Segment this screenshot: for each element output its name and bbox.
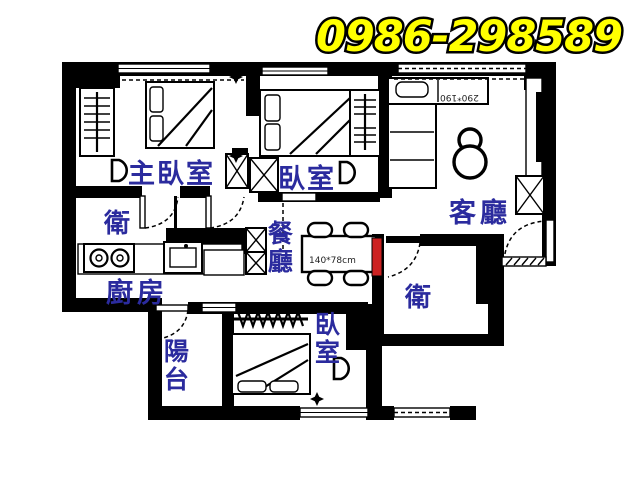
side-table-large xyxy=(454,146,486,178)
room-label-living-room: 客廳 xyxy=(449,191,511,230)
dining-chair-4 xyxy=(344,271,368,285)
bed-bedroom3-pillow-2 xyxy=(270,381,298,392)
door-frame-red xyxy=(372,238,382,276)
tv xyxy=(536,92,544,162)
dining-chair-3 xyxy=(308,271,332,285)
room-label-bedroom3: 臥室 xyxy=(313,311,342,367)
wall-divider-master-bed2 xyxy=(246,62,260,116)
sofa-pillow xyxy=(396,82,428,97)
bed-master-pillow-2 xyxy=(150,116,163,141)
room-label-kitchen: 廚房 xyxy=(106,271,168,310)
door-handle-bedroom2 xyxy=(340,162,355,183)
room-label-bath-top: 衛 xyxy=(104,203,130,240)
sofa-seat xyxy=(388,104,436,188)
door-handle-master xyxy=(112,160,127,181)
phone-number: 0986-298589 xyxy=(316,12,622,62)
dining-chair-2 xyxy=(344,223,368,237)
bed-bedroom2-pillow-1 xyxy=(265,95,280,121)
door-arc-bath-right xyxy=(388,243,420,277)
fridge xyxy=(204,250,244,275)
bed-bedroom2-pillow-2 xyxy=(265,124,280,150)
door-leaf-bath-top xyxy=(140,196,145,228)
bed-bedroom3-pillow-1 xyxy=(238,381,266,392)
bed-master-pillow-1 xyxy=(150,87,163,112)
door-arc-master xyxy=(210,197,244,228)
wall-bath2-bottom xyxy=(372,334,504,346)
sink-basin xyxy=(170,248,196,267)
floor-plan-page: 0986-298589 主臥室 臥室 客廳 衛 餐廳 廚房 衛 陽台 臥室 29… xyxy=(0,0,640,480)
room-label-bedroom2: 臥室 xyxy=(278,157,336,196)
wall-bottom-c xyxy=(450,406,476,420)
wall-bottom-a xyxy=(150,406,300,420)
floor-plan-drawing xyxy=(0,0,640,480)
dining-chair-1 xyxy=(308,223,332,237)
sink-faucet xyxy=(184,244,188,248)
dimension-dining-table: 140*78cm xyxy=(309,256,356,266)
room-label-balcony: 陽台 xyxy=(162,338,191,394)
wall-balcony-left xyxy=(148,300,162,420)
room-label-bath-right: 衛 xyxy=(405,277,431,314)
dimension-living-unit: 290*190 xyxy=(440,92,479,102)
wall-bottom-b xyxy=(368,406,394,420)
door-arc-balcony xyxy=(159,310,188,339)
door-leaf-bath-right xyxy=(386,236,420,243)
door-leaf-master xyxy=(206,196,211,228)
vent-symbol-3 xyxy=(310,392,324,406)
door-leaf-entrance xyxy=(546,220,554,262)
dining-table xyxy=(302,236,376,272)
room-label-dining: 餐廳 xyxy=(266,220,295,276)
wall-entry-block xyxy=(476,240,504,304)
door-arc-bath-top xyxy=(145,197,178,228)
wall-left xyxy=(62,62,76,312)
wall-bed3-right-block xyxy=(346,304,372,350)
room-label-master-bedroom: 主臥室 xyxy=(128,152,215,191)
